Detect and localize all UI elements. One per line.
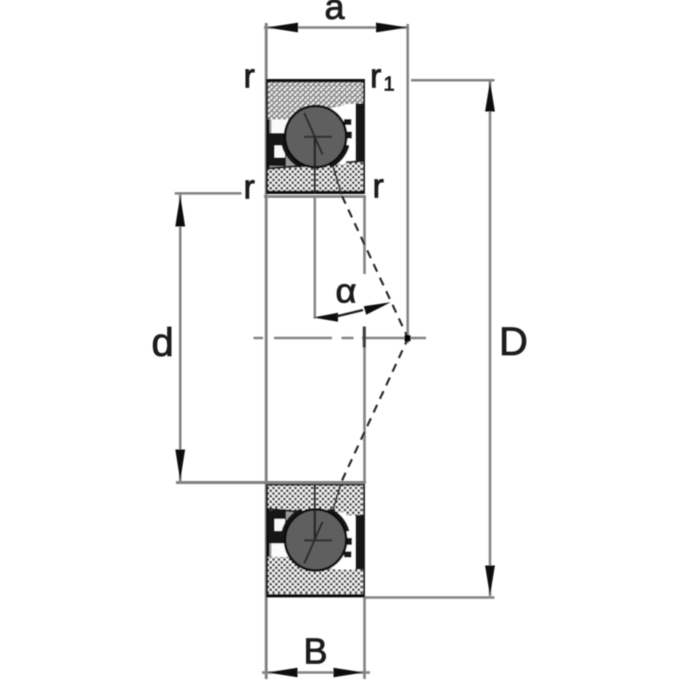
svg-text:1: 1 xyxy=(384,74,395,96)
svg-text:r: r xyxy=(244,169,255,207)
svg-text:B: B xyxy=(304,631,328,672)
svg-text:α: α xyxy=(336,273,357,311)
svg-text:r: r xyxy=(370,58,381,96)
svg-text:r: r xyxy=(373,168,384,206)
svg-text:d: d xyxy=(152,321,174,365)
svg-text:r: r xyxy=(244,58,255,96)
svg-text:a: a xyxy=(325,0,346,27)
svg-text:D: D xyxy=(499,320,528,364)
